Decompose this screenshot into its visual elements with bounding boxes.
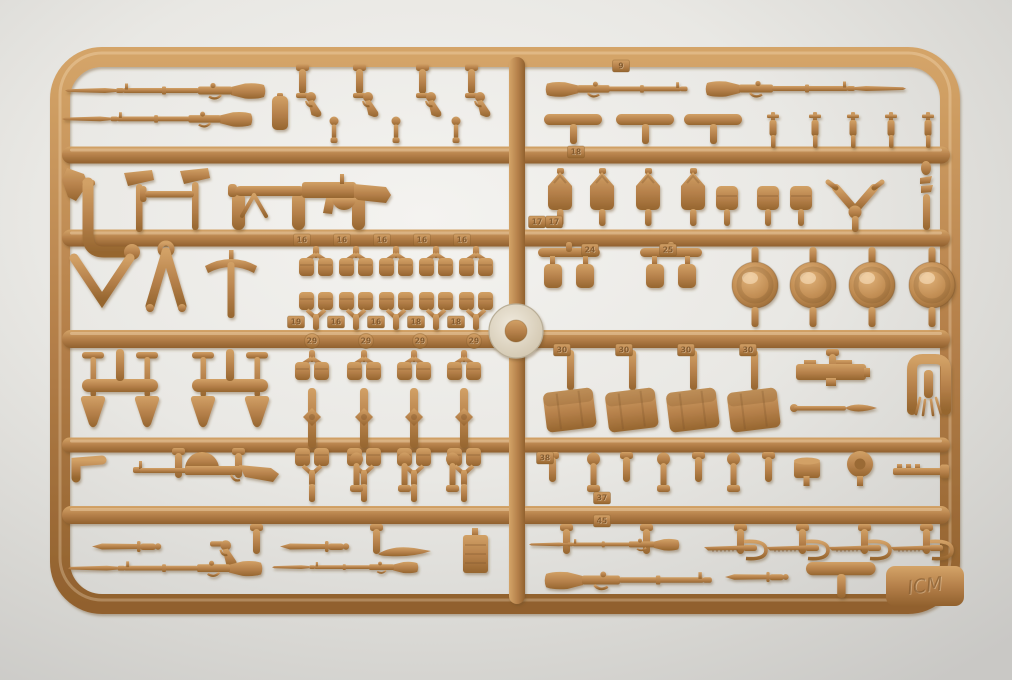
part-number: 29 xyxy=(307,337,317,346)
disc-layer xyxy=(489,304,543,358)
rail-highlight xyxy=(70,149,942,152)
part-number: 29 xyxy=(415,337,425,346)
part-number: 16 xyxy=(331,318,341,327)
sprue-photo: 9918181616161616161616161617171717242425… xyxy=(0,0,1012,680)
part-number: 16 xyxy=(417,236,427,245)
part-number: 45 xyxy=(597,517,607,526)
part-number: 30 xyxy=(743,346,753,355)
part-number: 9 xyxy=(618,62,623,71)
part-number: 30 xyxy=(681,346,691,355)
part-number: 18 xyxy=(451,318,461,327)
holster xyxy=(272,93,288,130)
part-number: 30 xyxy=(557,346,567,355)
rail-highlight xyxy=(70,440,942,443)
mold-ejector-disc-center xyxy=(505,320,527,342)
part-number: 17 xyxy=(549,218,559,227)
part-number: 37 xyxy=(597,494,607,503)
sprue-svg: 9918181616161616161616161617171717242425… xyxy=(0,0,1012,680)
part-number: 16 xyxy=(297,236,307,245)
rail-highlight xyxy=(70,232,942,235)
part-number: 18 xyxy=(571,148,581,157)
part-number: 16 xyxy=(457,236,467,245)
part-number: 16 xyxy=(377,236,387,245)
part-number: 16 xyxy=(337,236,347,245)
part-number: 25 xyxy=(663,246,673,255)
part-number: 29 xyxy=(469,337,479,346)
brand-logo-text: ICM xyxy=(906,573,944,599)
part-number: 16 xyxy=(371,318,381,327)
part-number: 24 xyxy=(585,246,595,255)
part-number: 29 xyxy=(361,337,371,346)
part-number: 19 xyxy=(291,318,301,327)
part-number: 38 xyxy=(540,454,550,463)
part-number: 30 xyxy=(619,346,629,355)
rail-highlight xyxy=(70,508,942,511)
part-number: 17 xyxy=(532,218,542,227)
part-number: 18 xyxy=(411,318,421,327)
logo-layer: ICMICM xyxy=(886,566,964,606)
sprue-gate xyxy=(292,192,305,230)
